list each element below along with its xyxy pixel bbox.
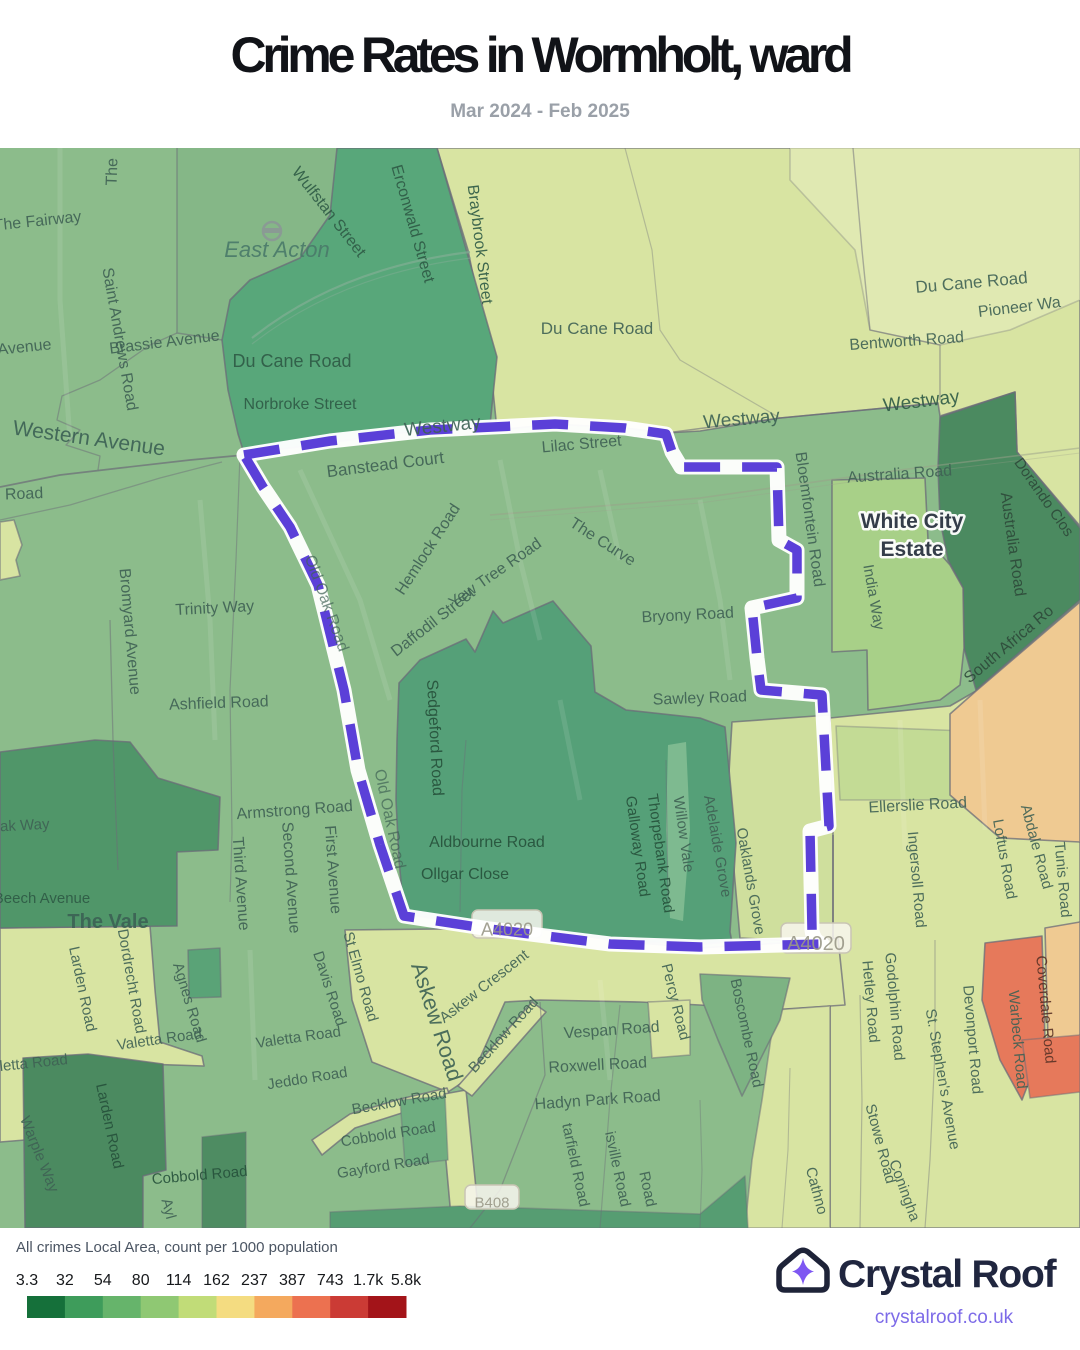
svg-text:The: The [104, 158, 122, 186]
svg-text:Ollgar Close: Ollgar Close [421, 866, 509, 883]
svg-text:The Vale: The Vale [67, 911, 148, 933]
svg-text:Ashfield Road: Ashfield Road [169, 693, 269, 713]
svg-text:Aldbourne Road: Aldbourne Road [429, 834, 545, 851]
svg-text:237: 237 [241, 1272, 268, 1289]
svg-text:1.7k: 1.7k [353, 1272, 384, 1289]
svg-text:387: 387 [279, 1272, 306, 1289]
svg-text:162: 162 [203, 1272, 230, 1289]
svg-text:s Road: s Road [0, 485, 43, 504]
svg-text:Du Cane Road: Du Cane Road [232, 351, 351, 371]
svg-text:80: 80 [132, 1272, 150, 1289]
svg-text:Sawley Road: Sawley Road [652, 688, 747, 708]
svg-text:Du Cane Road: Du Cane Road [541, 319, 653, 338]
svg-text:Norbroke Street: Norbroke Street [244, 396, 357, 413]
svg-text:East Acton: East Acton [224, 237, 330, 262]
svg-text:54: 54 [94, 1272, 112, 1289]
svg-text:A4020: A4020 [787, 933, 845, 955]
svg-text:5.8k: 5.8k [391, 1272, 422, 1289]
svg-text:White City: White City [861, 510, 964, 533]
svg-text:114: 114 [166, 1272, 192, 1289]
svg-text:Beech Avenue: Beech Avenue [0, 890, 90, 907]
svg-text:743: 743 [317, 1272, 344, 1289]
svg-text:3.3: 3.3 [16, 1272, 38, 1289]
svg-text:B408: B408 [474, 1194, 509, 1211]
svg-text:Crystal Roof: Crystal Roof [838, 1253, 1058, 1296]
svg-text:crystalroof.co.uk: crystalroof.co.uk [875, 1307, 1014, 1328]
svg-text:32: 32 [56, 1272, 74, 1289]
svg-text:Estate: Estate [880, 538, 943, 561]
svg-text:ak Way: ak Way [0, 816, 50, 836]
svg-text:A4020: A4020 [481, 919, 533, 939]
